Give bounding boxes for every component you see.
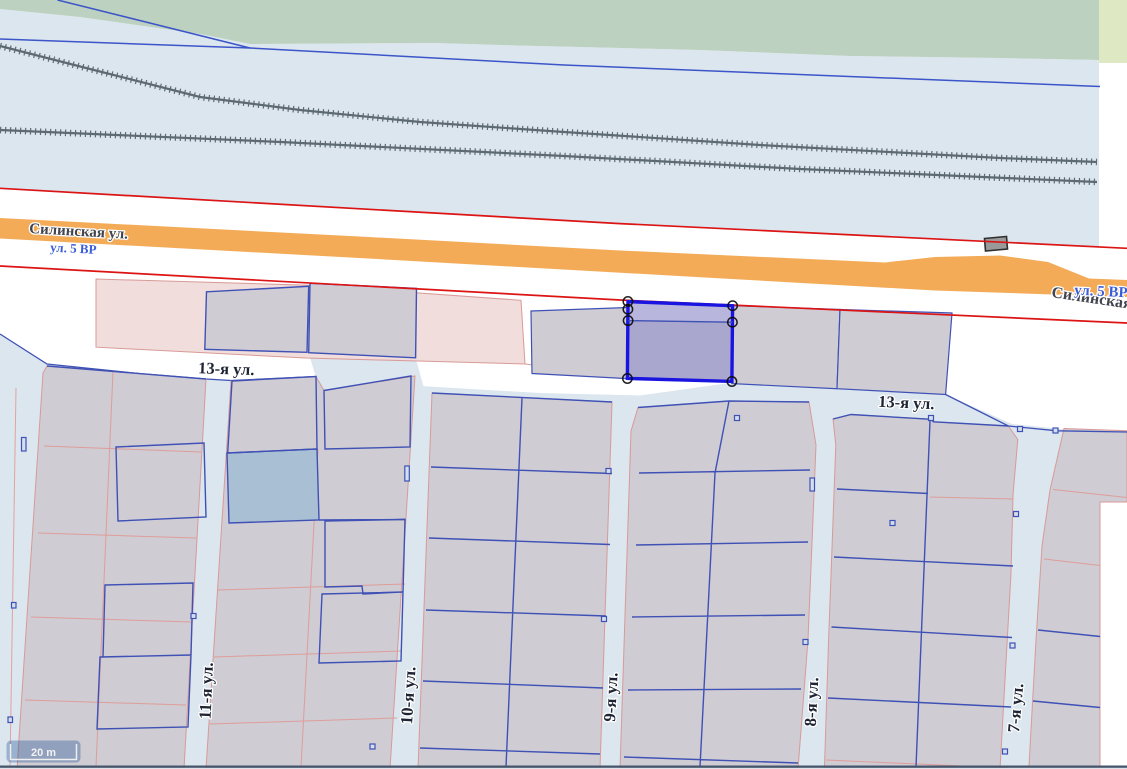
svg-text:8-я ул.: 8-я ул. [801, 677, 823, 727]
svg-text:9-я ул.: 9-я ул. [600, 672, 622, 722]
svg-text:13-я ул.: 13-я ул. [878, 392, 935, 413]
svg-text:10-я ул.: 10-я ул. [397, 666, 420, 725]
svg-text:ул. 5 ВР: ул. 5 ВР [1074, 283, 1127, 302]
svg-text:11-я ул.: 11-я ул. [196, 662, 217, 720]
svg-text:ул. 5 ВР: ул. 5 ВР [50, 240, 97, 257]
svg-text:13-я ул.: 13-я ул. [198, 358, 255, 379]
svg-text:20 m: 20 m [31, 747, 56, 759]
